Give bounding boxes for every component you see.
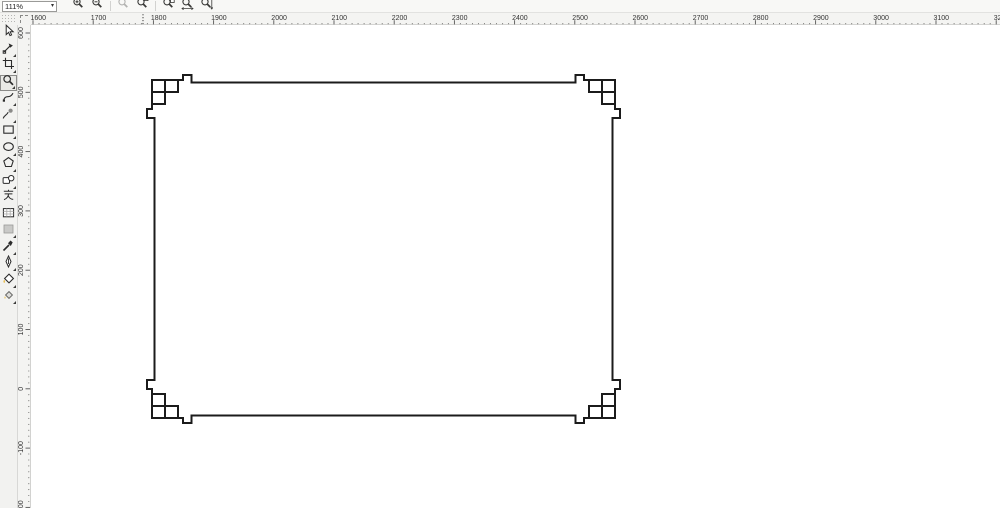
table-tool-icon xyxy=(2,206,15,224)
svg-text:1800: 1800 xyxy=(151,15,167,22)
flyout-arrow-icon[interactable] xyxy=(13,153,16,156)
svg-text:1600: 1600 xyxy=(31,15,46,22)
flyout-arrow-icon[interactable] xyxy=(13,285,16,288)
svg-text:2800: 2800 xyxy=(753,15,769,22)
flyout-arrow-icon[interactable] xyxy=(13,169,16,172)
svg-text:2900: 2900 xyxy=(813,15,829,22)
svg-text:3100: 3100 xyxy=(934,15,950,22)
dimension-tool[interactable] xyxy=(0,223,17,240)
svg-text:2400: 2400 xyxy=(512,15,528,22)
drawing-canvas[interactable] xyxy=(31,25,1000,508)
application-window: 111% ▾ 160017001800190020002100220023002… xyxy=(0,0,1000,508)
flyout-arrow-icon[interactable] xyxy=(13,301,16,304)
flyout-arrow-icon[interactable] xyxy=(13,186,16,189)
pick-tool-icon xyxy=(2,24,15,42)
text-tool[interactable] xyxy=(0,190,17,207)
crop-tool[interactable] xyxy=(0,58,17,75)
svg-text:400: 400 xyxy=(18,146,25,158)
svg-text:1700: 1700 xyxy=(91,15,107,22)
chevron-down-icon[interactable]: ▾ xyxy=(51,3,54,9)
fill-tool[interactable] xyxy=(0,273,17,290)
svg-text:1900: 1900 xyxy=(211,15,227,22)
flyout-arrow-icon[interactable] xyxy=(13,54,16,57)
zoom-in-button[interactable] xyxy=(71,0,86,12)
vertical-ruler[interactable]: 6005004003002001000-100-200 xyxy=(18,25,31,508)
zoom-tool-icon xyxy=(2,74,15,92)
basic-shapes-tool[interactable] xyxy=(0,174,17,191)
flyout-arrow-icon[interactable] xyxy=(13,103,16,106)
svg-text:100: 100 xyxy=(18,324,25,336)
flyout-arrow-icon[interactable] xyxy=(13,136,16,139)
table-tool[interactable] xyxy=(0,207,17,224)
ellipse-tool[interactable] xyxy=(0,141,17,158)
flyout-arrow-icon[interactable] xyxy=(13,70,16,73)
flyout-arrow-icon[interactable] xyxy=(13,120,16,123)
zoom-out-button[interactable] xyxy=(90,0,105,12)
rectangle-tool[interactable] xyxy=(0,124,17,141)
frame-drawing[interactable] xyxy=(31,25,1000,508)
svg-text:300: 300 xyxy=(18,205,25,217)
svg-text:3200: 3200 xyxy=(994,15,1000,22)
svg-text:600: 600 xyxy=(18,27,25,39)
svg-text:-100: -100 xyxy=(18,441,25,455)
toolbar-separator xyxy=(110,1,111,11)
svg-text:2200: 2200 xyxy=(392,15,408,22)
svg-text:2000: 2000 xyxy=(271,15,287,22)
zoom-level-combobox[interactable]: 111% ▾ xyxy=(2,1,57,12)
zoom-property-bar: 111% ▾ xyxy=(0,0,1000,13)
svg-text:2100: 2100 xyxy=(332,15,348,22)
interactive-fill-tool[interactable] xyxy=(0,289,17,306)
toolbar-grip-dots xyxy=(1,14,16,24)
svg-text:2700: 2700 xyxy=(693,15,709,22)
shape-tool[interactable] xyxy=(0,42,17,59)
svg-text:200: 200 xyxy=(18,264,25,276)
svg-text:2500: 2500 xyxy=(572,15,588,22)
svg-text:-200: -200 xyxy=(18,500,25,508)
outline-pen-tool[interactable] xyxy=(0,256,17,273)
zoom-level-value: 111% xyxy=(5,2,51,11)
svg-text:0: 0 xyxy=(18,387,25,391)
zoom-buttons-group xyxy=(69,0,216,12)
flyout-arrow-icon[interactable] xyxy=(13,268,16,271)
pick-tool[interactable] xyxy=(0,25,17,42)
zoom-to-page-button[interactable] xyxy=(161,0,176,12)
zoom-to-page-height-button[interactable] xyxy=(199,0,214,12)
freehand-tool[interactable] xyxy=(0,91,17,108)
ruler-corner xyxy=(0,13,31,25)
toolbox xyxy=(0,25,18,508)
svg-text:2600: 2600 xyxy=(633,15,649,22)
flyout-arrow-icon[interactable] xyxy=(13,235,16,238)
zoom-to-all-objects-button[interactable] xyxy=(135,0,150,12)
flyout-arrow-icon[interactable] xyxy=(13,252,16,255)
zoom-to-page-width-button[interactable] xyxy=(180,0,195,12)
horizontal-ruler[interactable]: 1600170018001900200021002200230024002500… xyxy=(31,13,1000,25)
polygon-tool[interactable] xyxy=(0,157,17,174)
zoom-tool[interactable] xyxy=(0,75,17,92)
zoom-to-selection-button xyxy=(116,0,131,12)
text-tool-icon xyxy=(2,189,15,207)
smart-fill-tool[interactable] xyxy=(0,108,17,125)
ruler-origin-icon[interactable] xyxy=(20,15,28,23)
flyout-arrow-icon[interactable] xyxy=(12,86,15,89)
eyedropper-tool[interactable] xyxy=(0,240,17,257)
svg-text:3000: 3000 xyxy=(873,15,889,22)
svg-text:500: 500 xyxy=(18,86,25,98)
toolbar-separator xyxy=(155,1,156,11)
svg-text:2300: 2300 xyxy=(452,15,468,22)
